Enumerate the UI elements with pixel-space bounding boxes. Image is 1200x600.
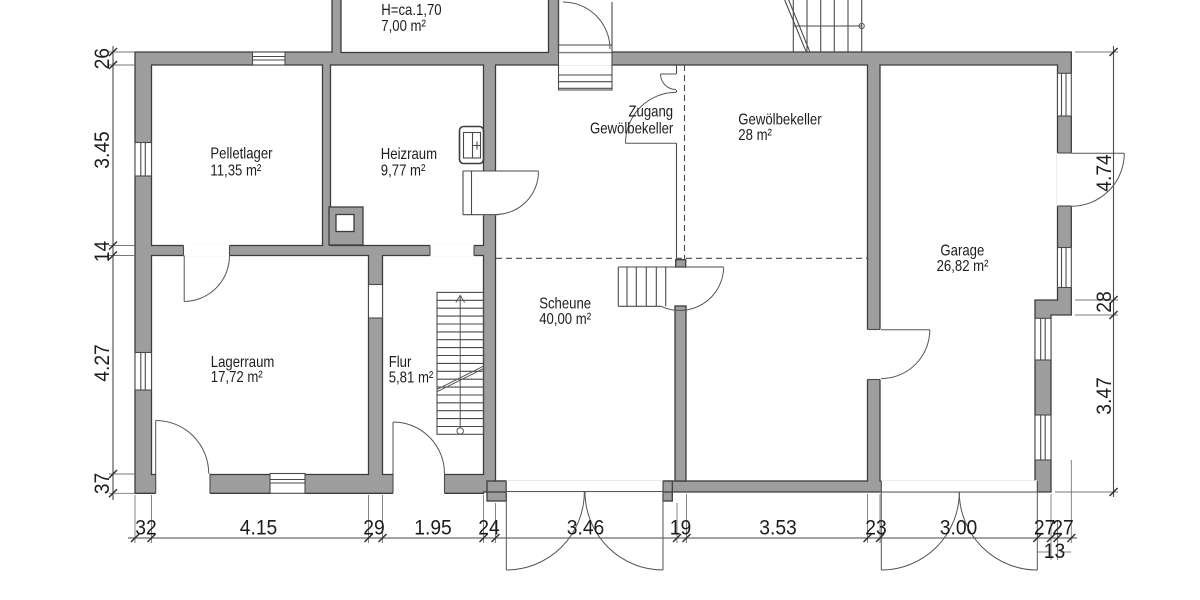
svg-text:24: 24: [478, 517, 499, 540]
svg-text:Gewölbekeller: Gewölbekeller: [590, 120, 673, 137]
svg-text:Heizraum: Heizraum: [381, 146, 437, 163]
svg-text:4.27: 4.27: [91, 344, 114, 382]
svg-text:5,81 m²: 5,81 m²: [389, 369, 434, 386]
svg-text:28: 28: [1093, 291, 1116, 312]
svg-text:27: 27: [1052, 517, 1073, 540]
svg-text:13: 13: [1044, 540, 1065, 563]
svg-text:3.53: 3.53: [759, 517, 797, 540]
svg-text:28 m²: 28 m²: [738, 127, 772, 144]
svg-text:11,35 m²: 11,35 m²: [210, 162, 261, 179]
svg-text:29: 29: [363, 517, 384, 540]
svg-text:7,00 m²: 7,00 m²: [381, 18, 426, 35]
svg-text:Zugang: Zugang: [629, 103, 674, 120]
svg-text:32: 32: [135, 517, 156, 540]
svg-text:14: 14: [91, 241, 114, 262]
svg-text:Pelletlager: Pelletlager: [210, 146, 272, 163]
svg-text:23: 23: [865, 517, 886, 540]
svg-text:19: 19: [670, 517, 691, 540]
svg-text:4.74: 4.74: [1093, 154, 1116, 192]
svg-text:3.00: 3.00: [940, 517, 978, 540]
svg-text:4.15: 4.15: [240, 517, 278, 540]
svg-text:40,00 m²: 40,00 m²: [539, 311, 591, 328]
svg-text:17,72 m²: 17,72 m²: [211, 369, 263, 386]
svg-text:3.46: 3.46: [567, 517, 605, 540]
svg-text:1.95: 1.95: [414, 517, 452, 540]
svg-text:3.47: 3.47: [1093, 377, 1116, 415]
svg-text:37: 37: [91, 473, 114, 494]
svg-text:9,77 m²: 9,77 m²: [381, 162, 426, 179]
svg-text:26,82 m²: 26,82 m²: [937, 258, 989, 275]
svg-text:26: 26: [91, 48, 114, 69]
svg-text:3.45: 3.45: [91, 131, 114, 169]
